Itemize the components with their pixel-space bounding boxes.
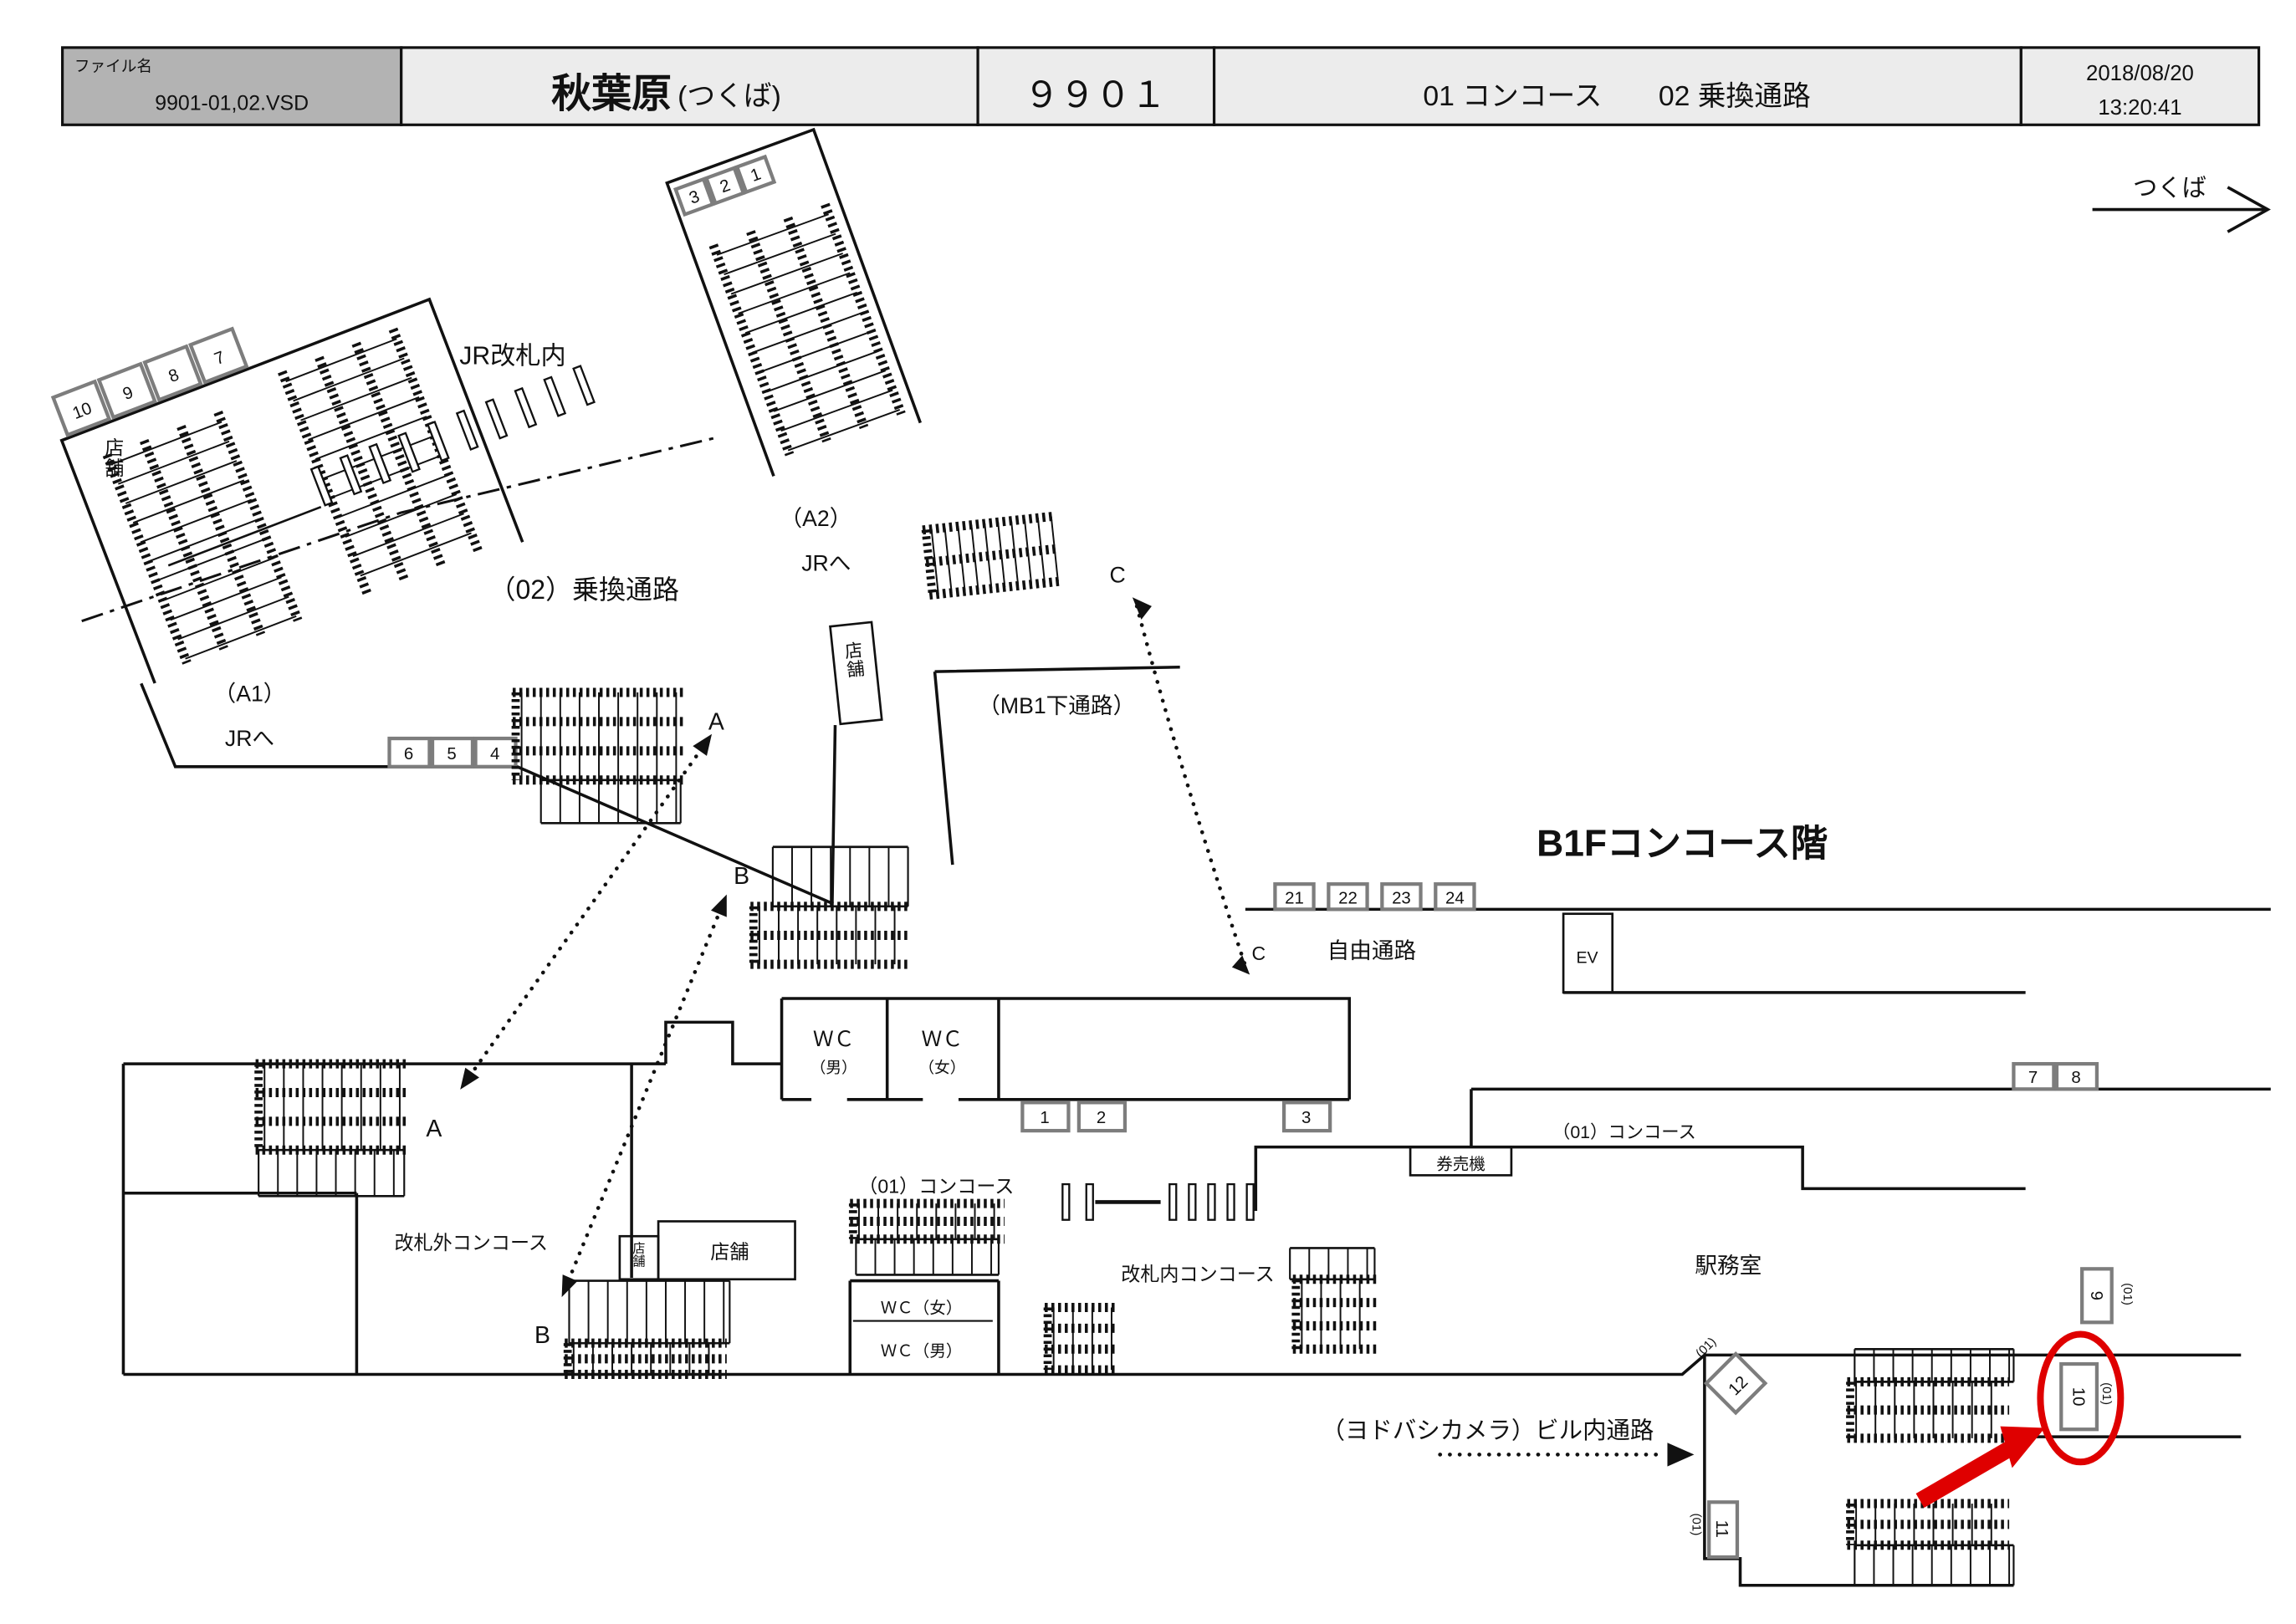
point-b-lower: B [534, 1322, 550, 1349]
a1-label: （A1） [214, 682, 286, 707]
ad-strip-7-8: 7 8 [2013, 1064, 2096, 1089]
shop-large-label: 店舗 [710, 1241, 749, 1263]
a2-dest-label: JRへ [801, 550, 851, 575]
wc-men-title: ＷＣ [813, 1028, 855, 1051]
guide-arrows [460, 597, 1694, 1466]
arrow-c-line [1137, 606, 1245, 966]
point-c-upper: C [1109, 563, 1125, 588]
station-map-page: ファイル名 9901-01,02.VSD 秋葉原 (つくば) ９９０１ 01 コ… [0, 0, 2296, 1624]
upper-shop: 店舗 [831, 622, 882, 724]
ad-plate-4: 4 [490, 745, 499, 763]
gate-boundary-line [168, 507, 320, 565]
office-label: 駅務室 [1695, 1254, 1762, 1279]
arrow-c-head-icon [1133, 597, 1152, 620]
ad-plate-5: 5 [447, 745, 456, 763]
ad-plate-1b: 1 [1040, 1109, 1049, 1127]
ad-plate-10-group: 10 [2061, 1364, 2097, 1429]
concourse01-left-label: （01）コンコース [858, 1176, 1014, 1198]
ad-plate-11-group: 11 [1709, 1502, 1737, 1557]
red-arrow-head-icon [2000, 1427, 2044, 1468]
ad-plate-3b: 3 [1301, 1109, 1311, 1127]
wc-men-line: ＷＣ（男） [881, 1342, 963, 1361]
upper-left-shop-label: 店舗 [105, 437, 124, 479]
ad-plate-11b: 11 [1712, 1520, 1731, 1538]
point-a-lower: A [426, 1116, 442, 1142]
red-arrow-shaft [1920, 1448, 2012, 1501]
a2-label: （A2） [780, 506, 851, 531]
shop-small-label: 店舗 [632, 1242, 645, 1269]
arrow-b-head-icon [711, 895, 727, 917]
tag-01-box12: (01) [1693, 1335, 1719, 1361]
ad-plate-7b: 7 [2028, 1069, 2038, 1087]
ad-plate-2b: 2 [1097, 1109, 1106, 1127]
file-label: ファイル名 [74, 57, 152, 74]
arrow-a-head-icon [693, 734, 712, 756]
drawing-code: ９９０１ [1024, 75, 1167, 115]
ad-plate-22: 22 [1338, 889, 1358, 907]
tag-01-box9: (01) [2120, 1283, 2135, 1305]
a1-hall-walls [62, 299, 523, 683]
wc-women-sub: （女） [918, 1059, 965, 1076]
b1f-concourse [123, 692, 2270, 1586]
time: 13:20:41 [2098, 96, 2181, 120]
ad-strip-6-5-4: 6 5 4 [389, 738, 515, 767]
arrow-a-line [463, 738, 708, 1085]
file-name: 9901-01,02.VSD [155, 92, 309, 115]
ad-strip-1-2-3: 1 2 3 [1022, 1102, 1330, 1131]
arrow-c-tail-icon [1232, 955, 1250, 974]
ad-plate-9b: 9 [2087, 1291, 2105, 1300]
inside-gate-label: 改札内コンコース [1121, 1264, 1274, 1285]
arrow-yodobashi-head-icon [1667, 1443, 1694, 1466]
ad-plate-12-group: 12 [1706, 1354, 1765, 1412]
corridor02-label: （02）乗換通路 [489, 575, 679, 605]
ad-plate-8b: 8 [2071, 1069, 2080, 1087]
date: 2018/08/20 [2086, 62, 2194, 85]
mb1-label: （MB1下通路） [978, 693, 1135, 718]
direction-label: つくば [2133, 175, 2207, 202]
point-a-upper: A [708, 708, 724, 735]
ticket-machine-label: 券売機 [1436, 1155, 1485, 1173]
tag-01-box10: (01) [2099, 1382, 2114, 1405]
tag-01-box11: (01) [1690, 1514, 1704, 1536]
arrow-b-line [565, 901, 724, 1289]
arrow-a-tail-icon [460, 1068, 479, 1090]
mb1-exit-stair [923, 516, 1061, 595]
title-block: ファイル名 9901-01,02.VSD 秋葉原 (つくば) ９９０１ 01 コ… [63, 48, 2259, 125]
yodobashi-label: （ヨドバシカメラ）ビル内通路 [1322, 1417, 1654, 1444]
ad-strip-21-24: 21 22 23 24 [1275, 884, 1474, 909]
station-title: 秋葉原 [551, 72, 672, 116]
a1-dest-label: JRへ [225, 726, 274, 751]
upper-shop-label: 店舗 [844, 640, 866, 680]
jr-inside-label: JR改札内 [459, 341, 565, 370]
ad-plate-10b: 10 [2068, 1387, 2087, 1407]
concourse01-right-label: （01）コンコース [1552, 1122, 1696, 1142]
point-c-lower: C [1252, 942, 1266, 964]
wc-women-title: ＷＣ [922, 1028, 964, 1051]
outside-gate-label: 改札外コンコース [394, 1232, 547, 1254]
station-map-drawing: ファイル名 9901-01,02.VSD 秋葉原 (つくば) ９９０１ 01 コ… [0, 0, 2296, 1624]
ad-strip-3-2-1: 3 2 1 [676, 156, 775, 214]
elevator-label: EV [1576, 948, 1598, 967]
ad-plate-9-group: 9 [2082, 1269, 2112, 1322]
free-passage-label: 自由通路 [1327, 938, 1417, 963]
a2-stair-block: 3 2 1 [667, 130, 920, 476]
b1f-title: B1Fコンコース階 [1537, 823, 1828, 864]
wc-women-line: ＷＣ（女） [881, 1300, 963, 1318]
station-subtitle: (つくば) [678, 80, 781, 112]
ad-plate-23: 23 [1392, 889, 1411, 907]
direction-arrow-tsukuba: つくば [2093, 175, 2268, 232]
point-b-upper: B [734, 863, 749, 890]
ad-plate-21: 21 [1285, 889, 1304, 907]
wc-men-sub: （男） [811, 1059, 857, 1076]
ad-plate-6: 6 [404, 745, 413, 763]
area-names: 01 コンコース 02 乗換通路 [1423, 80, 1810, 112]
ad-plate-24: 24 [1445, 889, 1465, 907]
